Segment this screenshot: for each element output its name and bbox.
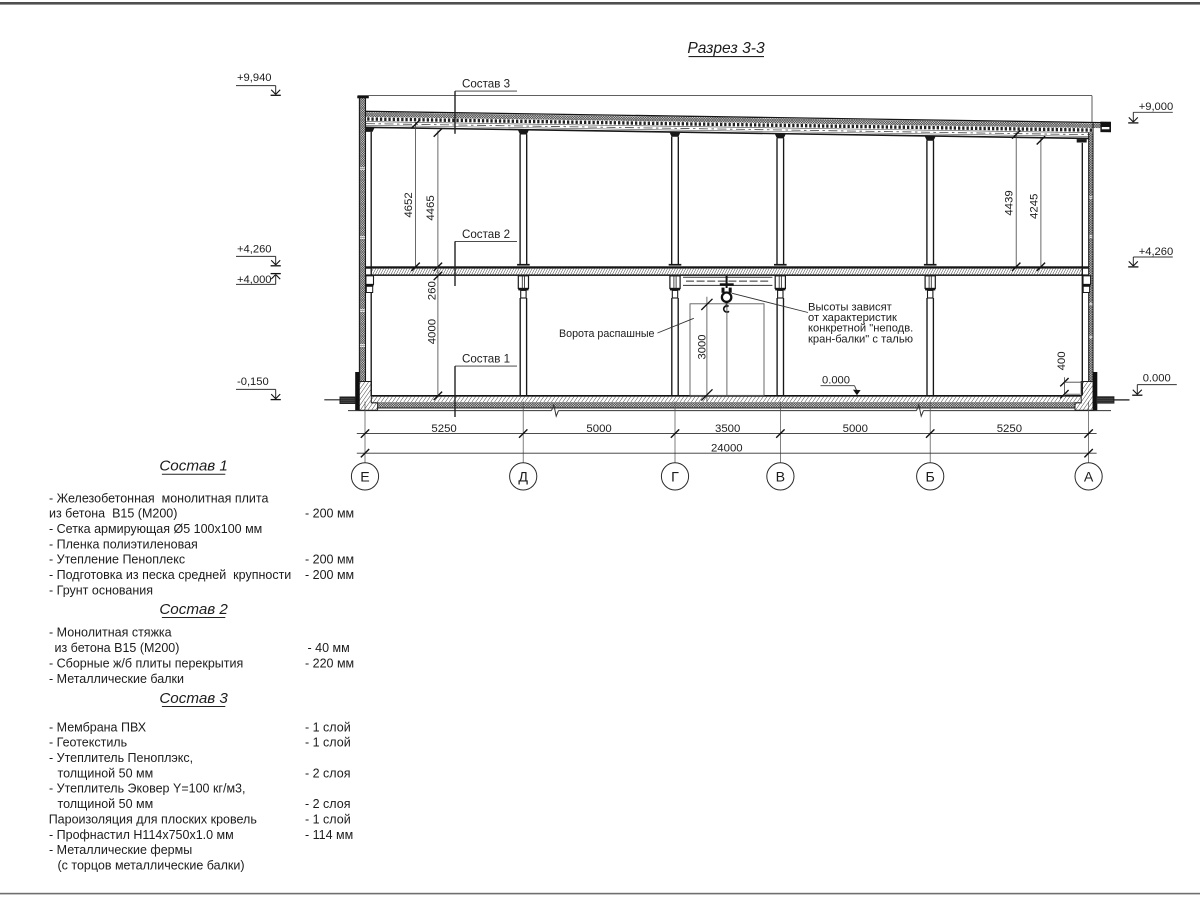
svg-text:+4,260: +4,260 <box>1139 246 1174 258</box>
svg-text:толщиной 50 мм: толщиной 50 мм <box>58 766 154 780</box>
svg-text:(с торцов металлические балки): (с торцов металлические балки) <box>58 858 245 872</box>
svg-text:4245: 4245 <box>1028 194 1040 219</box>
svg-text:Пароизоляция для плоских крове: Пароизоляция для плоских кровель <box>49 812 257 826</box>
svg-text:- Металлические фермы: - Металлические фермы <box>49 843 192 857</box>
svg-text:-0,150: -0,150 <box>237 376 269 388</box>
svg-text:- Монолитная стяжка: - Монолитная стяжка <box>49 626 172 640</box>
svg-text:А: А <box>1084 469 1094 485</box>
svg-text:0.000: 0.000 <box>822 374 850 386</box>
svg-text:- 200 мм: - 200 мм <box>305 568 354 582</box>
svg-text:Ворота распашные: Ворота распашные <box>559 328 655 340</box>
svg-text:Состав 1: Состав 1 <box>159 458 228 475</box>
svg-text:4465: 4465 <box>425 195 437 220</box>
svg-text:Разрез 3-3: Разрез 3-3 <box>687 40 765 57</box>
svg-text:- Подготовка из песка средней: - Подготовка из песка средней крупности <box>49 568 291 582</box>
svg-text:- 1 слой: - 1 слой <box>305 720 351 734</box>
svg-text:- 200 мм: - 200 мм <box>305 553 354 567</box>
svg-text:- Сборные ж/б плиты перекрытия: - Сборные ж/б плиты перекрытия <box>49 656 243 670</box>
svg-text:Состав 3: Состав 3 <box>462 78 510 91</box>
svg-text:- Профнастил Н114х750х1.0 мм: - Профнастил Н114х750х1.0 мм <box>49 828 234 842</box>
svg-text:3000: 3000 <box>697 335 709 360</box>
svg-text:- Утеплитель Эковер Y=100 кг/м: - Утеплитель Эковер Y=100 кг/м3, <box>49 782 245 796</box>
svg-text:- Сетка армирующая Ø5 100х100: - Сетка армирующая Ø5 100х100 мм <box>49 522 262 536</box>
svg-text:- 2 слоя: - 2 слоя <box>305 797 350 811</box>
svg-text:+4,260: +4,260 <box>237 244 272 256</box>
svg-text:Состав 1: Состав 1 <box>462 353 510 366</box>
svg-text:4000: 4000 <box>427 319 439 344</box>
svg-text:+9,000: +9,000 <box>1139 101 1174 113</box>
svg-text:- 200 мм: - 200 мм <box>305 507 354 521</box>
svg-text:24000: 24000 <box>711 442 743 454</box>
svg-text:- Утепление Пеноплекс: - Утепление Пеноплекс <box>49 553 185 567</box>
svg-text:Д: Д <box>518 469 528 485</box>
svg-text:- 40 мм: - 40 мм <box>308 641 350 655</box>
svg-text:из бетона В15 (М200): из бетона В15 (М200) <box>55 641 180 655</box>
svg-text:5000: 5000 <box>586 423 611 435</box>
svg-text:- Грунт основания: - Грунт основания <box>49 583 153 597</box>
svg-text:- Пленка полиэтиленовая: - Пленка полиэтиленовая <box>49 537 198 551</box>
svg-text:5250: 5250 <box>997 423 1022 435</box>
svg-text:- Металлические балки: - Металлические балки <box>49 672 184 686</box>
svg-text:кран-балки" с талью: кран-балки" с талью <box>808 333 913 345</box>
svg-text:0.000: 0.000 <box>1143 372 1171 384</box>
svg-text:- Железобетонная монолитная п: - Железобетонная монолитная плита <box>49 491 268 505</box>
svg-text:- Мембрана ПВХ: - Мембрана ПВХ <box>49 720 147 734</box>
svg-text:- Геотекстиль: - Геотекстиль <box>49 736 127 750</box>
svg-text:5250: 5250 <box>431 423 456 435</box>
svg-text:Г: Г <box>671 469 679 485</box>
svg-text:Состав 3: Состав 3 <box>159 690 228 707</box>
svg-text:- 1 слой: - 1 слой <box>305 812 351 826</box>
svg-text:- Утеплитель Пеноплэкс,: - Утеплитель Пеноплэкс, <box>49 751 193 765</box>
svg-text:- 2 слоя: - 2 слоя <box>305 766 350 780</box>
svg-text:+9,940: +9,940 <box>237 72 272 84</box>
svg-text:400: 400 <box>1056 351 1068 370</box>
svg-text:3500: 3500 <box>715 423 740 435</box>
svg-text:Состав 2: Состав 2 <box>159 601 228 618</box>
svg-text:толщиной 50 мм: толщиной 50 мм <box>58 797 154 811</box>
svg-text:4439: 4439 <box>1003 190 1015 215</box>
svg-text:Состав 2: Состав 2 <box>462 228 510 241</box>
svg-text:Б: Б <box>926 469 935 485</box>
svg-text:Е: Е <box>360 469 369 485</box>
svg-text:В: В <box>776 469 785 485</box>
svg-text:5000: 5000 <box>843 423 868 435</box>
svg-text:- 220 мм: - 220 мм <box>305 656 354 670</box>
svg-text:4652: 4652 <box>403 192 415 217</box>
svg-text:- 114 мм: - 114 мм <box>305 828 353 842</box>
svg-text:из бетона В15 (М200): из бетона В15 (М200) <box>49 507 177 521</box>
svg-text:260: 260 <box>427 281 439 300</box>
svg-text:- 1 слой: - 1 слой <box>305 736 351 750</box>
